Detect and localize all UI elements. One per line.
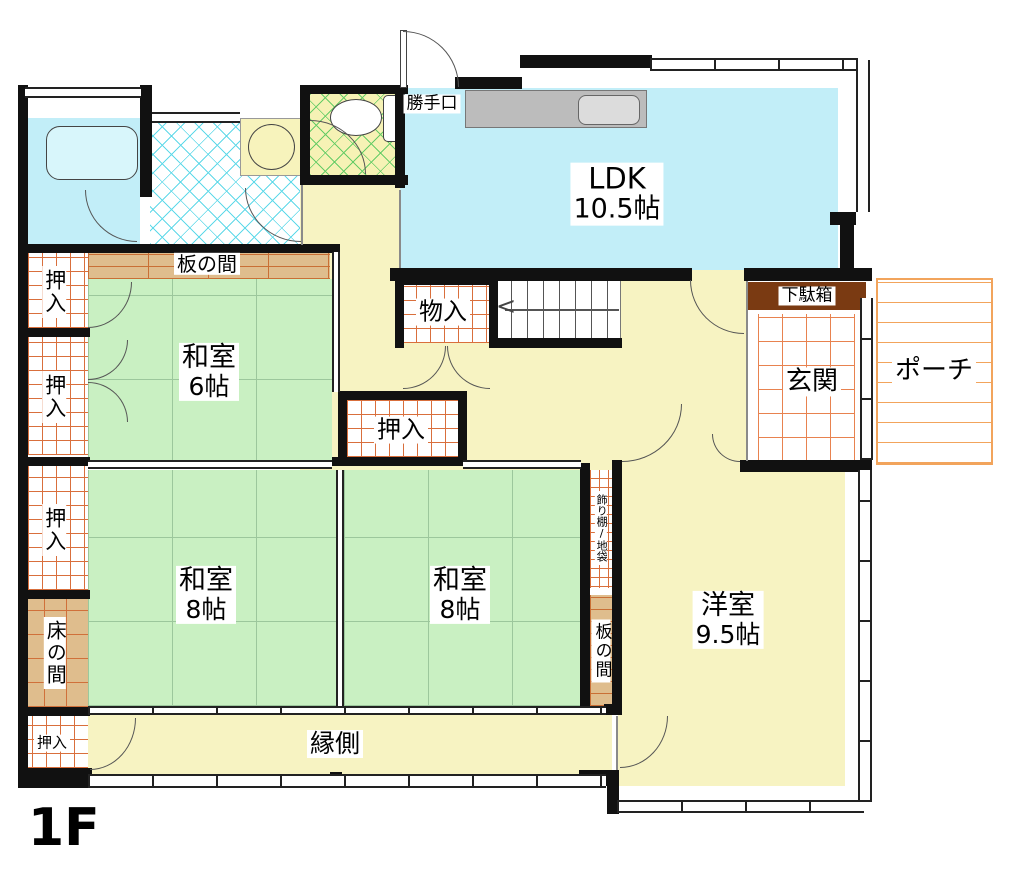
wall bbox=[140, 85, 152, 197]
wall bbox=[395, 276, 404, 348]
entrance-sliding-door bbox=[860, 298, 873, 460]
bathtub bbox=[46, 126, 138, 180]
washitsu-8-left-label: 和室 8帖 bbox=[176, 566, 236, 624]
fusuma-sliding-door bbox=[88, 460, 332, 469]
wall bbox=[395, 276, 498, 285]
floor-plan: < bbox=[0, 0, 1024, 869]
washbasin bbox=[240, 118, 302, 176]
window bbox=[88, 774, 606, 788]
oshiire-label: 押入 bbox=[42, 266, 66, 318]
kitchen-sink-icon bbox=[578, 95, 640, 125]
shoji-sliding-door bbox=[88, 706, 606, 715]
oshiire-middle-label: 押入 bbox=[374, 417, 428, 444]
wall bbox=[458, 391, 467, 466]
door-arc bbox=[403, 31, 459, 87]
room-size: 8帖 bbox=[179, 596, 233, 624]
fusuma-sliding-door bbox=[336, 470, 344, 706]
wall bbox=[18, 590, 90, 599]
room-name: 洋室 bbox=[696, 591, 761, 621]
wall bbox=[740, 460, 872, 472]
wall bbox=[604, 704, 622, 715]
washitsu-8-right-label: 和室 8帖 bbox=[430, 566, 490, 624]
door-leaf bbox=[616, 716, 618, 770]
youshitsu-label: 洋室 9.5帖 bbox=[693, 591, 764, 649]
wall bbox=[18, 707, 90, 716]
oshiire-label: 押入 bbox=[42, 371, 66, 423]
wall bbox=[332, 457, 466, 466]
window bbox=[152, 112, 240, 123]
wall bbox=[580, 463, 590, 715]
room-name: 和室 bbox=[179, 566, 233, 596]
wall bbox=[300, 85, 310, 185]
fusuma-sliding-door bbox=[463, 460, 581, 469]
stairs-arrow-icon: < bbox=[496, 294, 516, 318]
genkan-label: 玄関 bbox=[783, 367, 841, 396]
room-size: 8帖 bbox=[433, 596, 487, 624]
katteguchi-label: 勝手口 bbox=[404, 94, 461, 113]
monoire-label: 物入 bbox=[416, 299, 470, 326]
room-size: 9.5帖 bbox=[696, 621, 761, 649]
genkan-step-line bbox=[746, 281, 748, 461]
stairs-direction-line bbox=[505, 309, 619, 311]
wall bbox=[490, 338, 622, 348]
room-name: 和室 bbox=[433, 566, 487, 596]
wall bbox=[612, 463, 622, 715]
wall bbox=[300, 175, 408, 185]
wall bbox=[338, 391, 347, 466]
tokonoma-label: 床の間 bbox=[44, 617, 66, 689]
room-size: 6帖 bbox=[182, 373, 236, 401]
floor-label: 1F bbox=[28, 802, 100, 854]
window bbox=[617, 800, 864, 813]
room-name: 和室 bbox=[182, 343, 236, 373]
wall bbox=[18, 457, 90, 466]
ldk-size: 10.5帖 bbox=[573, 195, 660, 225]
engawa-label: 縁側 bbox=[307, 730, 363, 758]
wall bbox=[18, 85, 28, 788]
partition-line bbox=[301, 185, 303, 245]
itanoma-right-label: 板の間 bbox=[591, 620, 610, 683]
washitsu-6-label: 和室 6帖 bbox=[179, 343, 239, 401]
wall bbox=[18, 768, 92, 788]
wall bbox=[840, 212, 854, 281]
ldk-name: LDK bbox=[573, 163, 660, 195]
partition-line bbox=[399, 190, 401, 268]
sliding-door bbox=[332, 252, 340, 392]
window bbox=[858, 470, 872, 802]
wall bbox=[455, 77, 522, 89]
getabako-label: 下駄箱 bbox=[779, 286, 836, 305]
wall bbox=[612, 460, 622, 472]
kazaridana-label: 飾り棚/地袋 bbox=[595, 491, 607, 565]
oshiire-label: 押入 bbox=[42, 504, 66, 556]
washbasin-bowl-icon bbox=[248, 124, 295, 170]
window bbox=[650, 58, 858, 71]
wall bbox=[18, 328, 90, 337]
porch-label: ポーチ bbox=[892, 356, 976, 385]
window bbox=[856, 60, 870, 212]
itanoma-top-label: 板の間 bbox=[174, 253, 240, 275]
window bbox=[25, 87, 141, 98]
wall bbox=[520, 55, 652, 68]
wall bbox=[300, 85, 408, 94]
oshiire-label: 押入 bbox=[34, 735, 70, 752]
wall bbox=[338, 391, 467, 400]
ldk-label: LDK 10.5帖 bbox=[570, 163, 663, 226]
